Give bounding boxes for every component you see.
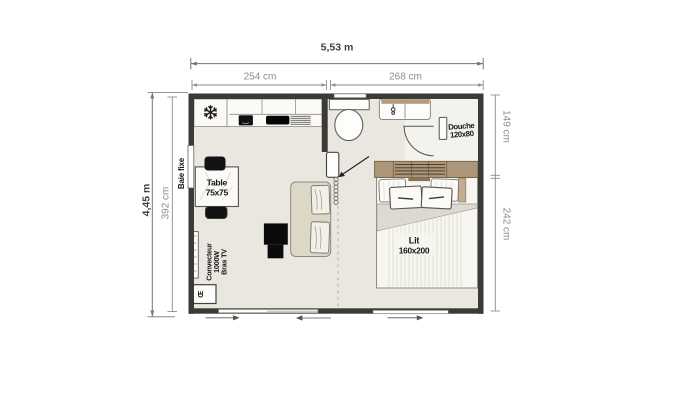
svg-text:Œ: Œ	[198, 291, 205, 298]
svg-text:5,53 m: 5,53 m	[321, 42, 354, 54]
svg-text:75x75: 75x75	[206, 188, 229, 198]
svg-text:254 cm: 254 cm	[244, 72, 277, 83]
svg-text:242 cm: 242 cm	[501, 208, 512, 241]
svg-text:160x200: 160x200	[399, 246, 430, 256]
svg-text:Table: Table	[207, 178, 228, 188]
svg-text:392 cm: 392 cm	[161, 187, 172, 220]
svg-text:Lit: Lit	[409, 236, 420, 246]
svg-text:Baie fixe: Baie fixe	[177, 157, 186, 189]
svg-text:120x80: 120x80	[450, 129, 475, 140]
svg-text:Bras TV: Bras TV	[220, 249, 229, 275]
svg-text:268 cm: 268 cm	[389, 72, 422, 83]
svg-text:4,45 m: 4,45 m	[141, 184, 153, 217]
svg-text:149 cm: 149 cm	[501, 110, 512, 143]
